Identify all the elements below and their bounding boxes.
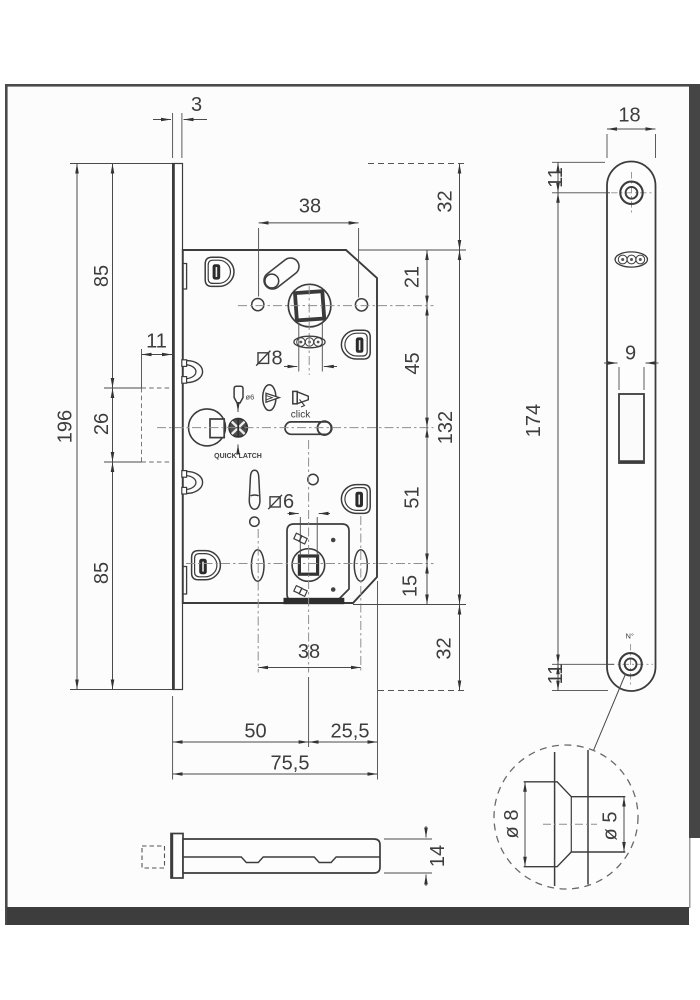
svg-text:75,5: 75,5 (271, 753, 310, 775)
svg-text:8: 8 (272, 348, 283, 370)
svg-text:38: 38 (299, 196, 321, 218)
svg-text:132: 132 (435, 411, 457, 444)
svg-text:26: 26 (91, 413, 113, 435)
svg-text:38: 38 (298, 641, 320, 663)
svg-text:N°: N° (626, 632, 634, 641)
svg-text:14: 14 (427, 845, 449, 867)
svg-text:85: 85 (91, 265, 113, 287)
svg-text:174: 174 (523, 404, 545, 437)
svg-text:11: 11 (545, 664, 567, 685)
svg-text:ø 5: ø 5 (600, 812, 622, 841)
svg-text:9: 9 (625, 343, 636, 365)
svg-text:18: 18 (618, 105, 640, 127)
svg-text:click: click (291, 410, 311, 421)
svg-text:ø 8: ø 8 (501, 810, 523, 839)
svg-text:3: 3 (191, 94, 202, 116)
svg-text:196: 196 (55, 410, 77, 443)
svg-text:25,5: 25,5 (331, 721, 370, 743)
svg-text:15: 15 (400, 575, 422, 597)
svg-text:50: 50 (244, 721, 266, 743)
svg-text:32: 32 (435, 190, 457, 212)
svg-text:51: 51 (402, 486, 424, 508)
svg-text:11: 11 (146, 331, 167, 353)
svg-text:21: 21 (402, 266, 424, 288)
svg-text:85: 85 (91, 562, 113, 584)
svg-text:6: 6 (283, 491, 294, 513)
svg-text:QUICK LATCH: QUICK LATCH (214, 453, 262, 460)
svg-text:32: 32 (434, 637, 456, 659)
svg-text:11: 11 (545, 167, 567, 188)
svg-text:ø6: ø6 (246, 393, 255, 402)
svg-text:45: 45 (402, 352, 424, 374)
